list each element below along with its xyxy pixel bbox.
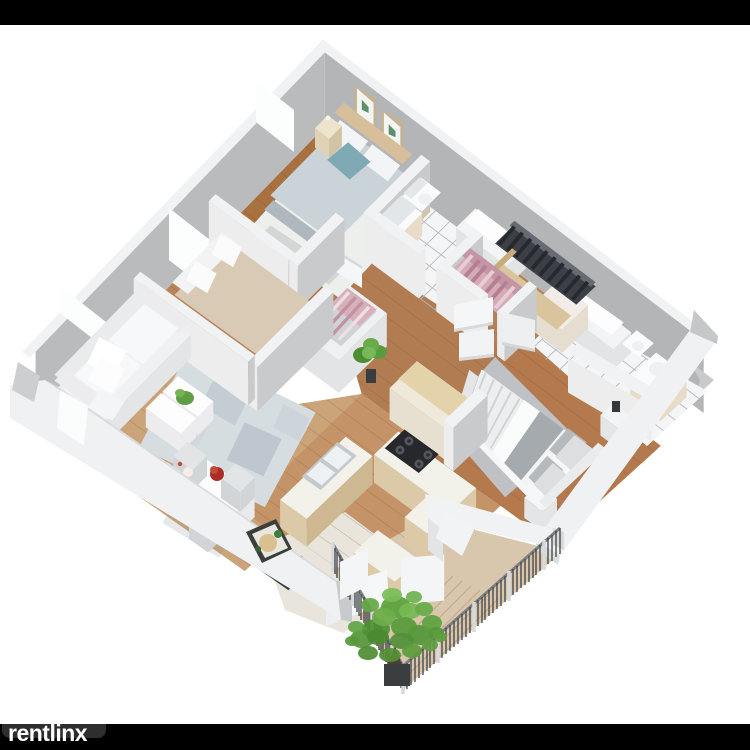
svg-text:rentlinx: rentlinx (8, 720, 88, 746)
